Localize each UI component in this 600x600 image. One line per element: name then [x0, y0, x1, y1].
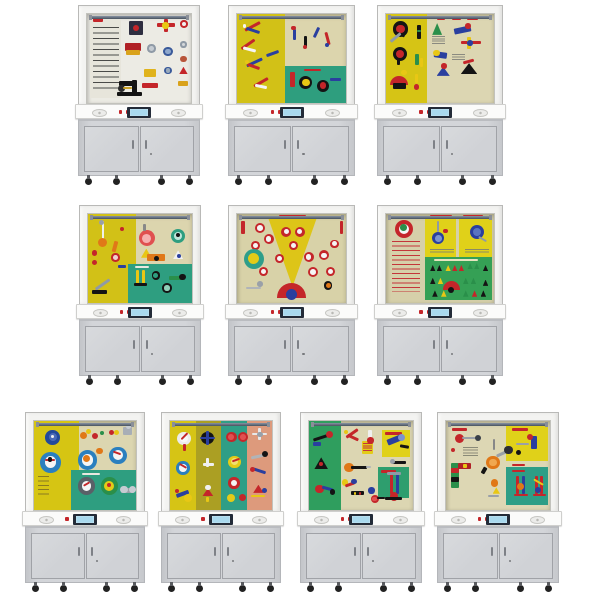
- model-part-rect: [451, 477, 458, 482]
- power-button: [120, 310, 124, 314]
- screen-display: [431, 109, 449, 116]
- fluorescent-light-tube-icon: [91, 16, 187, 19]
- model-part-disc-center: [473, 228, 481, 236]
- model-part-disc: [317, 80, 329, 92]
- door-handle: [78, 547, 80, 556]
- control-counter: [158, 511, 284, 526]
- power-button: [201, 517, 205, 521]
- caster-wheel-icon: [265, 178, 272, 185]
- model-part-circle: [527, 434, 533, 440]
- screen-display: [130, 109, 148, 116]
- model-part-disc-center: [302, 79, 309, 86]
- model-part-circle: [120, 486, 127, 493]
- speaker-grille-icon: [451, 516, 466, 524]
- fluorescent-light-tube-icon: [390, 216, 489, 219]
- model-part-disc-center: [277, 256, 282, 261]
- cabinet-door-left: [31, 533, 85, 579]
- model-part-circle: [491, 479, 498, 486]
- model-part-rect: [206, 431, 209, 445]
- caster-wheel-icon: [459, 178, 466, 185]
- screen-display: [76, 516, 94, 523]
- screen-display: [212, 516, 230, 523]
- display-window: [385, 213, 495, 304]
- cabinet-door-right: [86, 533, 140, 579]
- door-handle: [446, 340, 448, 349]
- base-cabinet: [228, 319, 355, 376]
- model-part-disc-center: [332, 241, 337, 246]
- caster-wheel-icon: [335, 585, 342, 592]
- model-part-circle: [368, 487, 374, 493]
- model-part-rect: [118, 265, 127, 268]
- keyhole-icon: [451, 353, 454, 356]
- model-part-rect: [251, 495, 265, 498]
- model-part-disc-center: [320, 82, 327, 89]
- model-part-disc-center: [261, 269, 266, 274]
- model-part-lines: [392, 241, 421, 292]
- model-part-rect: [132, 80, 137, 96]
- model-part-rect: [488, 495, 499, 498]
- model-part-rect: [452, 428, 467, 431]
- cabinet-door-left: [84, 126, 139, 172]
- model-part-circle: [401, 70, 407, 76]
- model-part-rect: [385, 497, 402, 500]
- door-handle: [297, 140, 299, 149]
- door-handle: [91, 547, 93, 556]
- display-window: [385, 13, 495, 104]
- model-part-disc-center: [231, 480, 237, 486]
- model-part-disc: [295, 227, 305, 237]
- fluorescent-light-tube-icon: [38, 423, 132, 426]
- caster-wheel-icon: [85, 178, 92, 185]
- model-part-rect: [493, 439, 495, 450]
- caster-wheel-icon: [341, 178, 348, 185]
- display-case: [78, 5, 200, 105]
- keyhole-icon: [232, 560, 235, 563]
- speaker-grille-icon: [243, 109, 258, 117]
- caster-wheel-icon: [489, 378, 496, 385]
- model-part-disc-center: [166, 68, 170, 72]
- control-counter: [374, 304, 506, 319]
- model-part-circle: [245, 60, 249, 64]
- model-part-tri: [432, 23, 442, 35]
- caster-wheel-icon: [235, 378, 242, 385]
- power-button: [419, 310, 423, 314]
- model-part-disc-center: [297, 229, 303, 235]
- cabinet-door-right: [499, 533, 554, 579]
- power-button: [419, 110, 423, 114]
- control-counter: [76, 304, 204, 319]
- model-part-disc: [275, 254, 284, 263]
- model-part-disc: [180, 41, 186, 47]
- speaker-grille-icon: [473, 309, 488, 317]
- caster-wheel-icon: [408, 585, 415, 592]
- model-part-circle: [184, 494, 192, 502]
- speaker-grille-icon: [392, 309, 407, 317]
- model-part-disc: [40, 452, 61, 473]
- caster-wheel-icon: [341, 378, 348, 385]
- speaker-grille-icon: [473, 109, 488, 117]
- control-counter: [297, 511, 425, 526]
- door-panel-group: [167, 533, 275, 579]
- model-part-disc-center: [321, 253, 327, 259]
- model-part-circle: [250, 467, 255, 472]
- caster-wheel-icon: [159, 378, 166, 385]
- model-part-tri: [461, 63, 478, 74]
- cabinet-door-right: [141, 326, 196, 372]
- model-part-rect: [117, 92, 142, 96]
- model-part-disc-center: [153, 273, 158, 278]
- display-case: [228, 205, 355, 305]
- base-cabinet: [377, 119, 503, 176]
- model-part-disc-center: [266, 236, 272, 242]
- model-part-circle: [504, 446, 513, 455]
- model-part-rect: [92, 290, 107, 294]
- caster-wheel-icon: [380, 585, 387, 592]
- cabinet-4: [79, 205, 201, 385]
- model-part-circle: [291, 26, 295, 30]
- model-part-lines: [93, 27, 118, 93]
- model-part-rect: [134, 283, 148, 286]
- control-screen: [280, 107, 304, 118]
- model-part-circle: [451, 448, 455, 452]
- speaker-grille-icon: [393, 516, 408, 524]
- cabinet-6: [377, 205, 503, 385]
- caster-wheel-icon: [311, 178, 318, 185]
- model-part-disc-center: [149, 46, 154, 51]
- model-part-circle: [51, 435, 54, 438]
- keyhole-icon: [150, 153, 153, 156]
- model-part-rect: [340, 221, 343, 234]
- display-window: [236, 213, 347, 304]
- speaker-grille-icon: [325, 109, 340, 117]
- model-part-circle: [367, 437, 373, 443]
- model-part-rect: [396, 474, 399, 494]
- speaker-grille-icon: [172, 309, 187, 317]
- model-part-rect: [512, 464, 526, 467]
- power-button: [341, 517, 345, 521]
- model-part-circle: [319, 462, 323, 466]
- control-counter: [225, 104, 358, 119]
- caster-wheel-icon: [267, 585, 274, 592]
- control-screen: [428, 307, 452, 318]
- speaker-grille-icon: [325, 309, 340, 317]
- model-part-circle: [286, 289, 297, 300]
- door-handle: [214, 547, 216, 556]
- model-part-lines: [452, 54, 465, 61]
- display-case: [300, 412, 422, 512]
- model-part-disc: [259, 267, 268, 276]
- door-panel-group: [383, 326, 497, 372]
- display-case: [25, 412, 145, 512]
- caster-wheel-icon: [265, 378, 272, 385]
- model-part-disc-center: [182, 22, 186, 26]
- model-part-disc-center: [489, 459, 497, 467]
- model-part-lines: [432, 36, 445, 45]
- caster-wheel-icon: [459, 378, 466, 385]
- model-part-rect: [397, 58, 400, 65]
- door-panel-group: [306, 533, 416, 579]
- model-part-rect: [330, 78, 341, 82]
- model-part-rect: [241, 221, 244, 234]
- model-part-circle: [400, 224, 407, 231]
- model-part-rect: [377, 497, 386, 500]
- caster-wheel-icon: [239, 585, 246, 592]
- model-part-rect: [313, 27, 321, 38]
- display-case: [79, 205, 201, 305]
- model-part-disc-center: [240, 434, 246, 440]
- keyhole-icon: [372, 560, 375, 563]
- model-part-rect: [136, 270, 139, 284]
- control-counter: [75, 104, 203, 119]
- model-part-disc-center: [182, 43, 186, 47]
- model-part-disc: [244, 249, 264, 269]
- display-case: [377, 5, 503, 105]
- fluorescent-light-tube-icon: [241, 16, 341, 19]
- display-window: [87, 213, 193, 304]
- display-window: [86, 13, 192, 104]
- model-part-disc-center: [253, 243, 258, 248]
- model-part-rect: [135, 266, 150, 268]
- model-part-circle: [354, 492, 357, 495]
- model-part-disc-center: [164, 285, 169, 290]
- control-counter: [225, 304, 358, 319]
- caster-wheel-icon: [384, 178, 391, 185]
- model-part-rect: [347, 433, 359, 440]
- model-part-disc: [324, 281, 333, 290]
- fluorescent-light-tube-icon: [390, 16, 489, 19]
- model-part-circle: [114, 430, 119, 435]
- cabinet-5: [228, 205, 355, 385]
- model-part-lines: [363, 443, 372, 452]
- model-part-circle: [351, 479, 356, 484]
- model-part-rect: [390, 474, 393, 494]
- model-part-rect: [142, 83, 158, 88]
- cabinet-door-left: [383, 326, 440, 372]
- caster-wheel-icon: [60, 585, 67, 592]
- power-button: [271, 310, 275, 314]
- model-part-disc: [228, 477, 239, 488]
- door-panel-group: [234, 126, 349, 172]
- model-part-circle: [98, 238, 108, 248]
- door-handle: [354, 547, 356, 556]
- display-cabinet-product-photo: [0, 0, 600, 600]
- control-screen: [349, 514, 373, 525]
- model-part-disc: [162, 283, 172, 293]
- door-panel-group: [31, 533, 139, 579]
- model-part-disc-center: [310, 269, 316, 275]
- model-part-lines: [465, 249, 489, 255]
- model-part-disc: [176, 461, 190, 475]
- model-part-disc: [164, 67, 171, 74]
- model-part-tri: [493, 487, 500, 493]
- caster-wheel-icon: [235, 178, 242, 185]
- model-part-disc: [486, 456, 500, 470]
- caster-wheel-icon: [489, 178, 496, 185]
- power-button: [271, 110, 275, 114]
- control-counter: [434, 511, 562, 526]
- model-part-disc-center: [142, 234, 151, 243]
- model-part-disc-center: [328, 269, 333, 274]
- model-part-disc-center: [165, 49, 170, 54]
- model-part-circle: [414, 84, 420, 90]
- caster-wheel-icon: [444, 585, 451, 592]
- caster-wheel-icon: [113, 178, 120, 185]
- display-case: [161, 412, 281, 512]
- door-handle: [491, 547, 493, 556]
- model-part-rect: [366, 466, 371, 469]
- model-part-rect: [387, 472, 401, 475]
- power-button: [119, 110, 123, 114]
- fluorescent-light-tube-icon: [241, 216, 341, 219]
- speaker-grille-icon: [243, 309, 258, 317]
- cabinet-10: [437, 412, 559, 592]
- door-handle: [433, 140, 435, 149]
- cabinet-door-left: [167, 533, 221, 579]
- model-part-rect: [415, 54, 419, 65]
- screen-display: [431, 309, 449, 316]
- caster-wheel-icon: [311, 378, 318, 385]
- fluorescent-light-tube-icon: [313, 423, 409, 426]
- door-handle: [297, 340, 299, 349]
- caster-wheel-icon: [307, 585, 314, 592]
- model-part-circle: [86, 429, 91, 434]
- caster-wheel-icon: [186, 178, 193, 185]
- cabinet-7: [25, 412, 145, 592]
- door-panel-group: [85, 326, 195, 372]
- model-part-disc: [330, 240, 339, 249]
- screen-display: [489, 516, 507, 523]
- model-part-circle: [205, 485, 210, 490]
- model-part-rect: [123, 87, 132, 89]
- base-cabinet: [377, 319, 503, 376]
- door-panel-group: [84, 126, 194, 172]
- keyhole-icon: [302, 353, 305, 356]
- base-cabinet: [25, 526, 145, 583]
- caster-wheel-icon: [384, 378, 391, 385]
- model-part-disc: [255, 223, 265, 233]
- model-part-rect: [417, 30, 421, 33]
- door-handle: [433, 340, 435, 349]
- base-cabinet: [228, 119, 355, 176]
- door-handle: [284, 340, 286, 349]
- model-part-circle: [433, 50, 440, 57]
- fluorescent-light-tube-icon: [92, 216, 188, 219]
- display-window: [308, 420, 414, 511]
- model-part-circle: [325, 43, 329, 47]
- keyhole-icon: [509, 560, 512, 563]
- display-window: [169, 420, 273, 511]
- speaker-grille-icon: [175, 516, 190, 524]
- caster-wheel-icon: [196, 585, 203, 592]
- control-screen: [128, 307, 152, 318]
- control-screen: [280, 307, 304, 318]
- power-button: [65, 517, 69, 521]
- model-part-rect: [142, 270, 145, 284]
- speaker-grille-icon: [93, 309, 108, 317]
- model-part-tri: [179, 67, 188, 74]
- caster-wheel-icon: [131, 585, 138, 592]
- screen-display: [283, 109, 301, 116]
- door-handle: [145, 140, 147, 149]
- display-window: [236, 13, 347, 104]
- model-part-circle: [107, 483, 111, 487]
- model-part-disc-center: [284, 229, 290, 235]
- cabinet-3: [377, 5, 503, 185]
- door-handle: [146, 340, 148, 349]
- display-case: [437, 412, 559, 512]
- model-part-disc-center: [113, 255, 118, 260]
- cabinet-door-right: [292, 126, 349, 172]
- speaker-grille-icon: [530, 516, 545, 524]
- model-part-circle: [100, 431, 104, 435]
- model-part-circle: [303, 45, 307, 49]
- caster-wheel-icon: [32, 585, 39, 592]
- cabinet-door-right: [441, 326, 498, 372]
- model-part-disc: [308, 267, 318, 277]
- screen-display: [283, 309, 301, 316]
- model-part-disc-center: [228, 434, 234, 440]
- door-handle: [132, 140, 134, 149]
- cabinet-door-left: [234, 126, 291, 172]
- cabinet-door-left: [306, 533, 361, 579]
- model-part-rect: [246, 287, 262, 289]
- model-part-disc-center: [306, 254, 312, 260]
- cabinet-door-left: [234, 326, 291, 372]
- door-handle: [504, 547, 506, 556]
- cabinet-8: [161, 412, 281, 592]
- model-part-rect: [434, 259, 478, 261]
- display-window: [33, 420, 137, 511]
- screen-display: [352, 516, 370, 523]
- speaker-grille-icon: [116, 516, 131, 524]
- cabinet-door-left: [85, 326, 140, 372]
- model-part-lines: [430, 249, 454, 255]
- model-part-circle: [467, 40, 473, 46]
- control-counter: [374, 104, 506, 119]
- fluorescent-light-tube-icon: [174, 423, 268, 426]
- base-cabinet: [300, 526, 422, 583]
- model-part-rect: [417, 25, 421, 40]
- caster-wheel-icon: [414, 378, 421, 385]
- base-cabinet: [437, 526, 559, 583]
- model-part-rect: [393, 83, 406, 89]
- cabinet-door-left: [383, 126, 440, 172]
- caster-wheel-icon: [545, 585, 552, 592]
- model-part-disc: [304, 252, 314, 262]
- cabinet-2: [228, 5, 355, 185]
- model-part-disc-center: [291, 243, 296, 248]
- door-handle: [133, 340, 135, 349]
- model-part-rect: [351, 466, 367, 469]
- model-part-disc: [163, 47, 173, 57]
- base-cabinet: [161, 526, 281, 583]
- model-part-disc: [111, 253, 120, 262]
- model-part-circle: [390, 459, 395, 464]
- model-part-rect: [82, 473, 101, 475]
- cabinet-door-right: [292, 326, 349, 372]
- model-part-circle: [441, 63, 447, 69]
- model-part-rect: [463, 464, 467, 469]
- cabinet-9: [300, 412, 422, 592]
- caster-wheel-icon: [414, 178, 421, 185]
- control-screen: [486, 514, 510, 525]
- model-part-circle: [443, 229, 447, 233]
- cabinet-door-right: [222, 533, 276, 579]
- caster-wheel-icon: [86, 378, 93, 385]
- model-part-rect: [290, 72, 294, 87]
- model-part-rect: [313, 442, 320, 447]
- model-part-disc-center: [326, 283, 331, 288]
